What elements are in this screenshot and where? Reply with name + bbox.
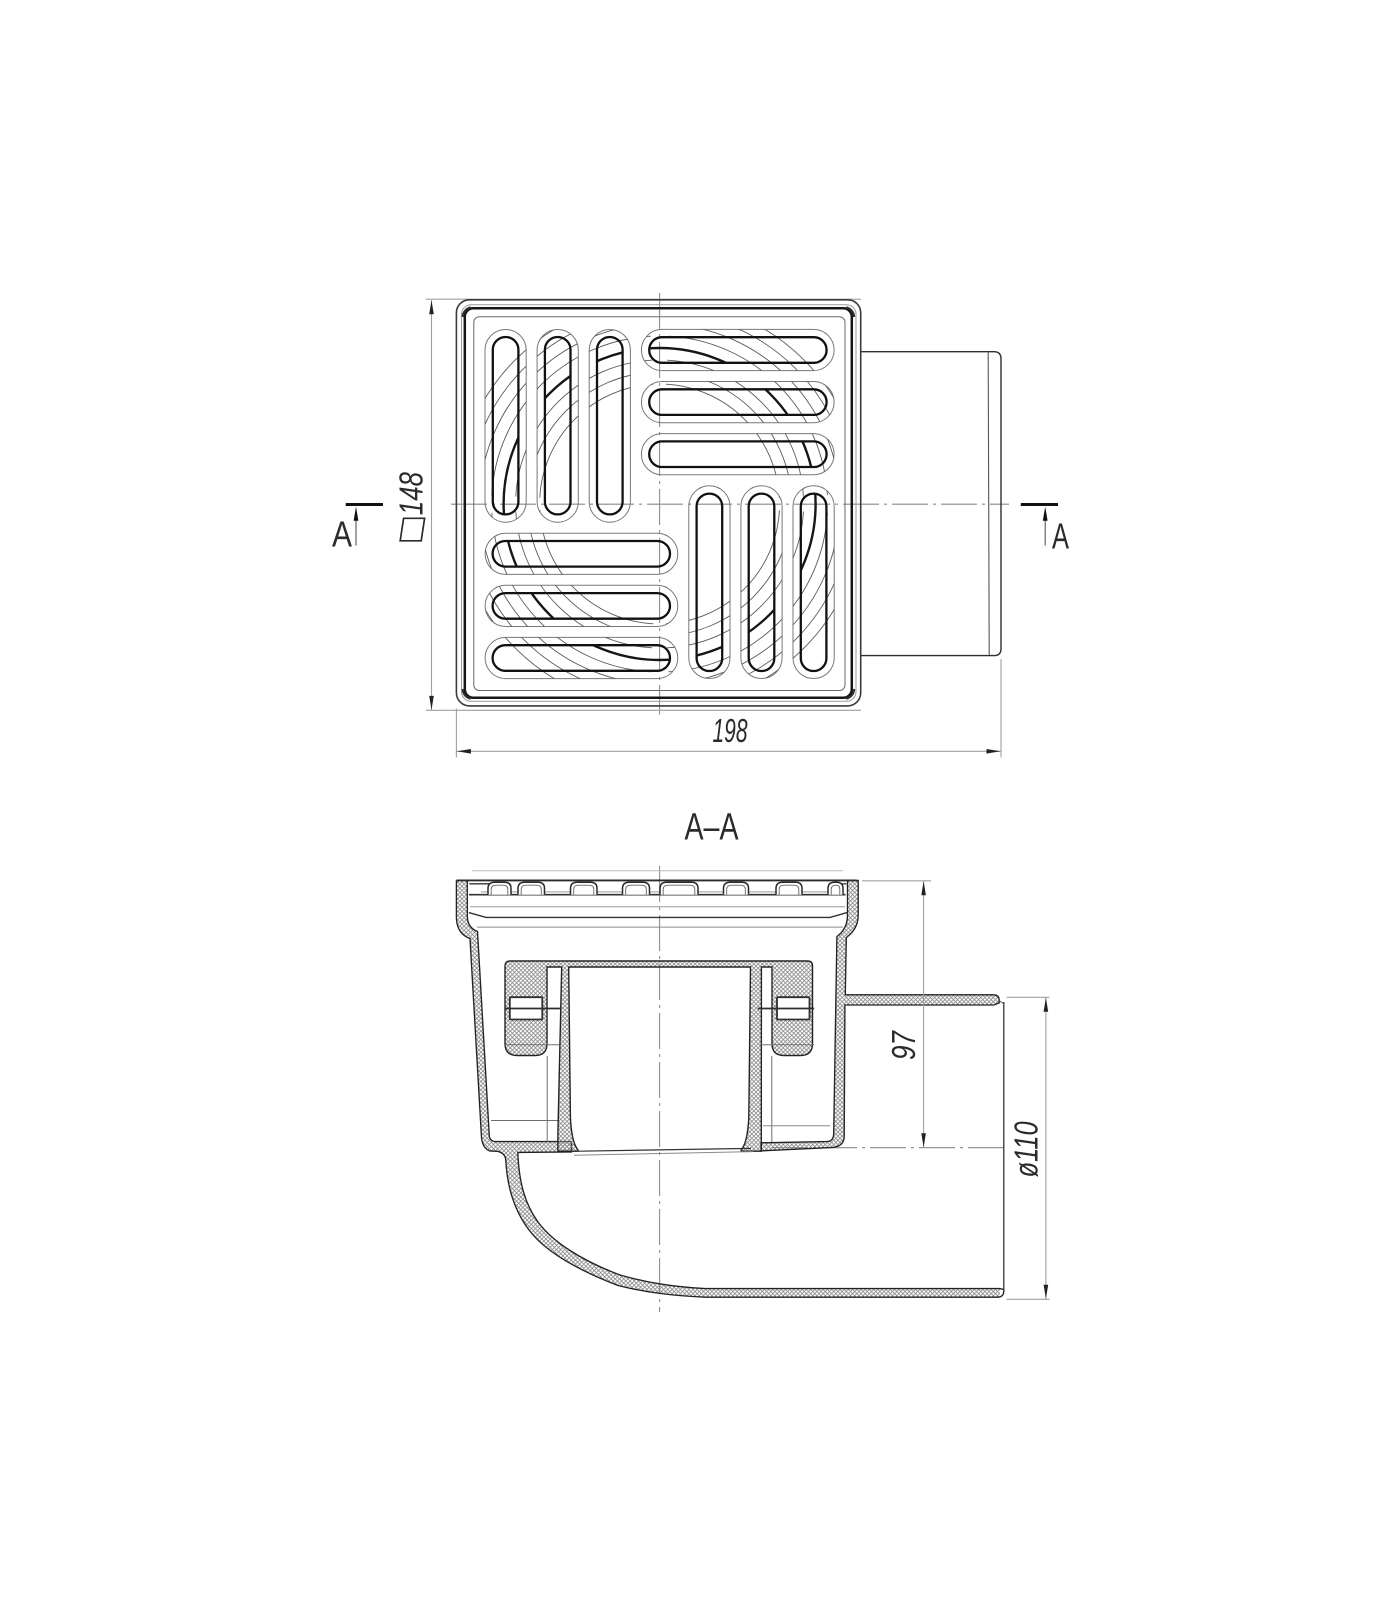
svg-text:ø110: ø110 [1008,1121,1045,1177]
svg-text:148: 148 [392,472,429,516]
svg-text:A: A [332,514,352,555]
svg-text:198: 198 [713,712,748,749]
svg-text:A–A: A–A [685,807,739,849]
svg-text:97: 97 [885,1030,922,1060]
svg-text:A: A [1052,516,1069,557]
